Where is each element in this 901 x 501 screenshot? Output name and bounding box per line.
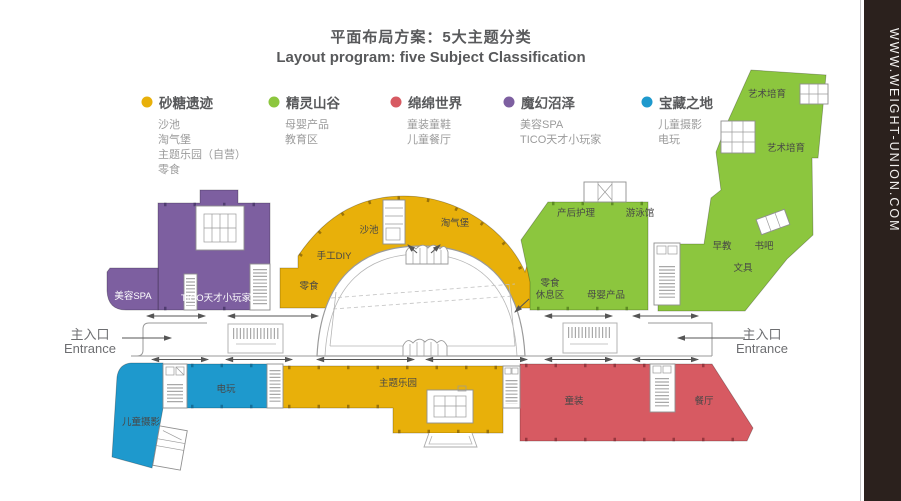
legend-item-sugar: 砂糖遗迹 沙池 淘气堡 主题乐园（自营） 零食: [141, 92, 246, 178]
watermark-url: WWW.WEIGHT-UNION.COM: [864, 28, 901, 233]
legend-name: 绵绵世界: [408, 92, 462, 112]
legend-dot-world-icon: [390, 96, 402, 108]
legend-entry: 沙池: [158, 118, 246, 133]
label-photo: 儿童摄影: [122, 416, 161, 428]
legend-dot-treasure-icon: [641, 96, 653, 108]
legend-dot-sugar-icon: [141, 96, 153, 108]
page-title: 平面布局方案：5大主题分类 Layout program: five Subje…: [0, 26, 862, 66]
legend-entry: 儿童摄影: [658, 118, 713, 133]
label-diy: 手工DIY: [317, 250, 353, 262]
legend-item-swamp: 魔幻沼泽 美容SPA TICO天才小玩家: [503, 92, 601, 148]
entrance-left: 主入口 Entrance: [50, 328, 130, 356]
floor-plan: 美容SPA TICO天才小玩家 零食 手工DIY 沙池 淘气堡 产后护理 游泳馆…: [0, 0, 901, 501]
label-sand-pool: 沙池: [359, 224, 379, 236]
legend-name: 宝藏之地: [659, 92, 713, 112]
legend-entry: 教育区: [285, 133, 340, 148]
label-theme-park: 主题乐园: [379, 377, 417, 389]
label-rest-area: 休息区: [536, 289, 565, 301]
poster: 美容SPA TICO天才小玩家 零食 手工DIY 沙池 淘气堡 产后护理 游泳馆…: [0, 0, 901, 501]
legend-entry: 儿童餐厅: [407, 133, 462, 148]
legend-item-valley: 精灵山谷 母婴产品 教育区: [268, 92, 340, 148]
legend-entry: 主题乐园（自营）: [158, 148, 246, 163]
legend-item-world: 绵绵世界 童装童鞋 儿童餐厅: [390, 92, 462, 148]
label-arcade: 电玩: [216, 383, 236, 395]
label-snack-west: 零食: [299, 280, 319, 292]
zone-red: [520, 364, 753, 441]
legend-entry: 电玩: [658, 133, 713, 148]
label-castle: 淘气堡: [441, 217, 470, 229]
label-early-edu: 早教: [712, 240, 732, 252]
title-en: Layout program: five Subject Classificat…: [0, 49, 862, 66]
label-kids-wear: 童装: [564, 395, 584, 407]
label-postpartum: 产后护理: [557, 207, 596, 219]
legend-item-treasure: 宝藏之地 儿童摄影 电玩: [641, 92, 713, 148]
entrance-right-en: Entrance: [722, 342, 802, 356]
watermark-strip: WWW.WEIGHT-UNION.COM: [864, 0, 901, 501]
title-zh: 平面布局方案：5大主题分类: [0, 26, 862, 47]
legend-entry: 母婴产品: [285, 118, 340, 133]
label-stationery: 文具: [733, 262, 753, 274]
label-snack-east: 零食: [540, 277, 560, 289]
legend-entry: 童装童鞋: [407, 118, 462, 133]
zone-spa: [107, 268, 158, 310]
label-maternal: 母婴产品: [587, 289, 625, 301]
strip-divider: [860, 0, 861, 501]
label-spa: 美容SPA: [114, 290, 152, 302]
legend-name: 精灵山谷: [286, 92, 340, 112]
legend-entry: 零食: [158, 163, 246, 178]
legend-entry: 美容SPA: [520, 118, 601, 133]
legend-dot-valley-icon: [268, 96, 280, 108]
legend-dot-swamp-icon: [503, 96, 515, 108]
label-art-mid: 艺术培育: [767, 142, 805, 154]
legend-name: 魔幻沼泽: [521, 92, 575, 112]
label-restaurant: 餐厅: [694, 395, 714, 407]
entrance-left-en: Entrance: [50, 342, 130, 356]
label-tico: TICO天才小玩家: [181, 292, 252, 304]
entrance-right-zh: 主入口: [722, 328, 802, 342]
entrance-left-zh: 主入口: [50, 328, 130, 342]
label-art-top: 艺术培育: [748, 88, 786, 100]
legend-name: 砂糖遗迹: [159, 92, 213, 112]
legend-entry: TICO天才小玩家: [520, 133, 601, 148]
legend-entry: 淘气堡: [158, 133, 246, 148]
entrance-right: 主入口 Entrance: [722, 328, 802, 356]
label-book-bar: 书吧: [754, 241, 774, 252]
label-swimming: 游泳馆: [626, 207, 655, 219]
